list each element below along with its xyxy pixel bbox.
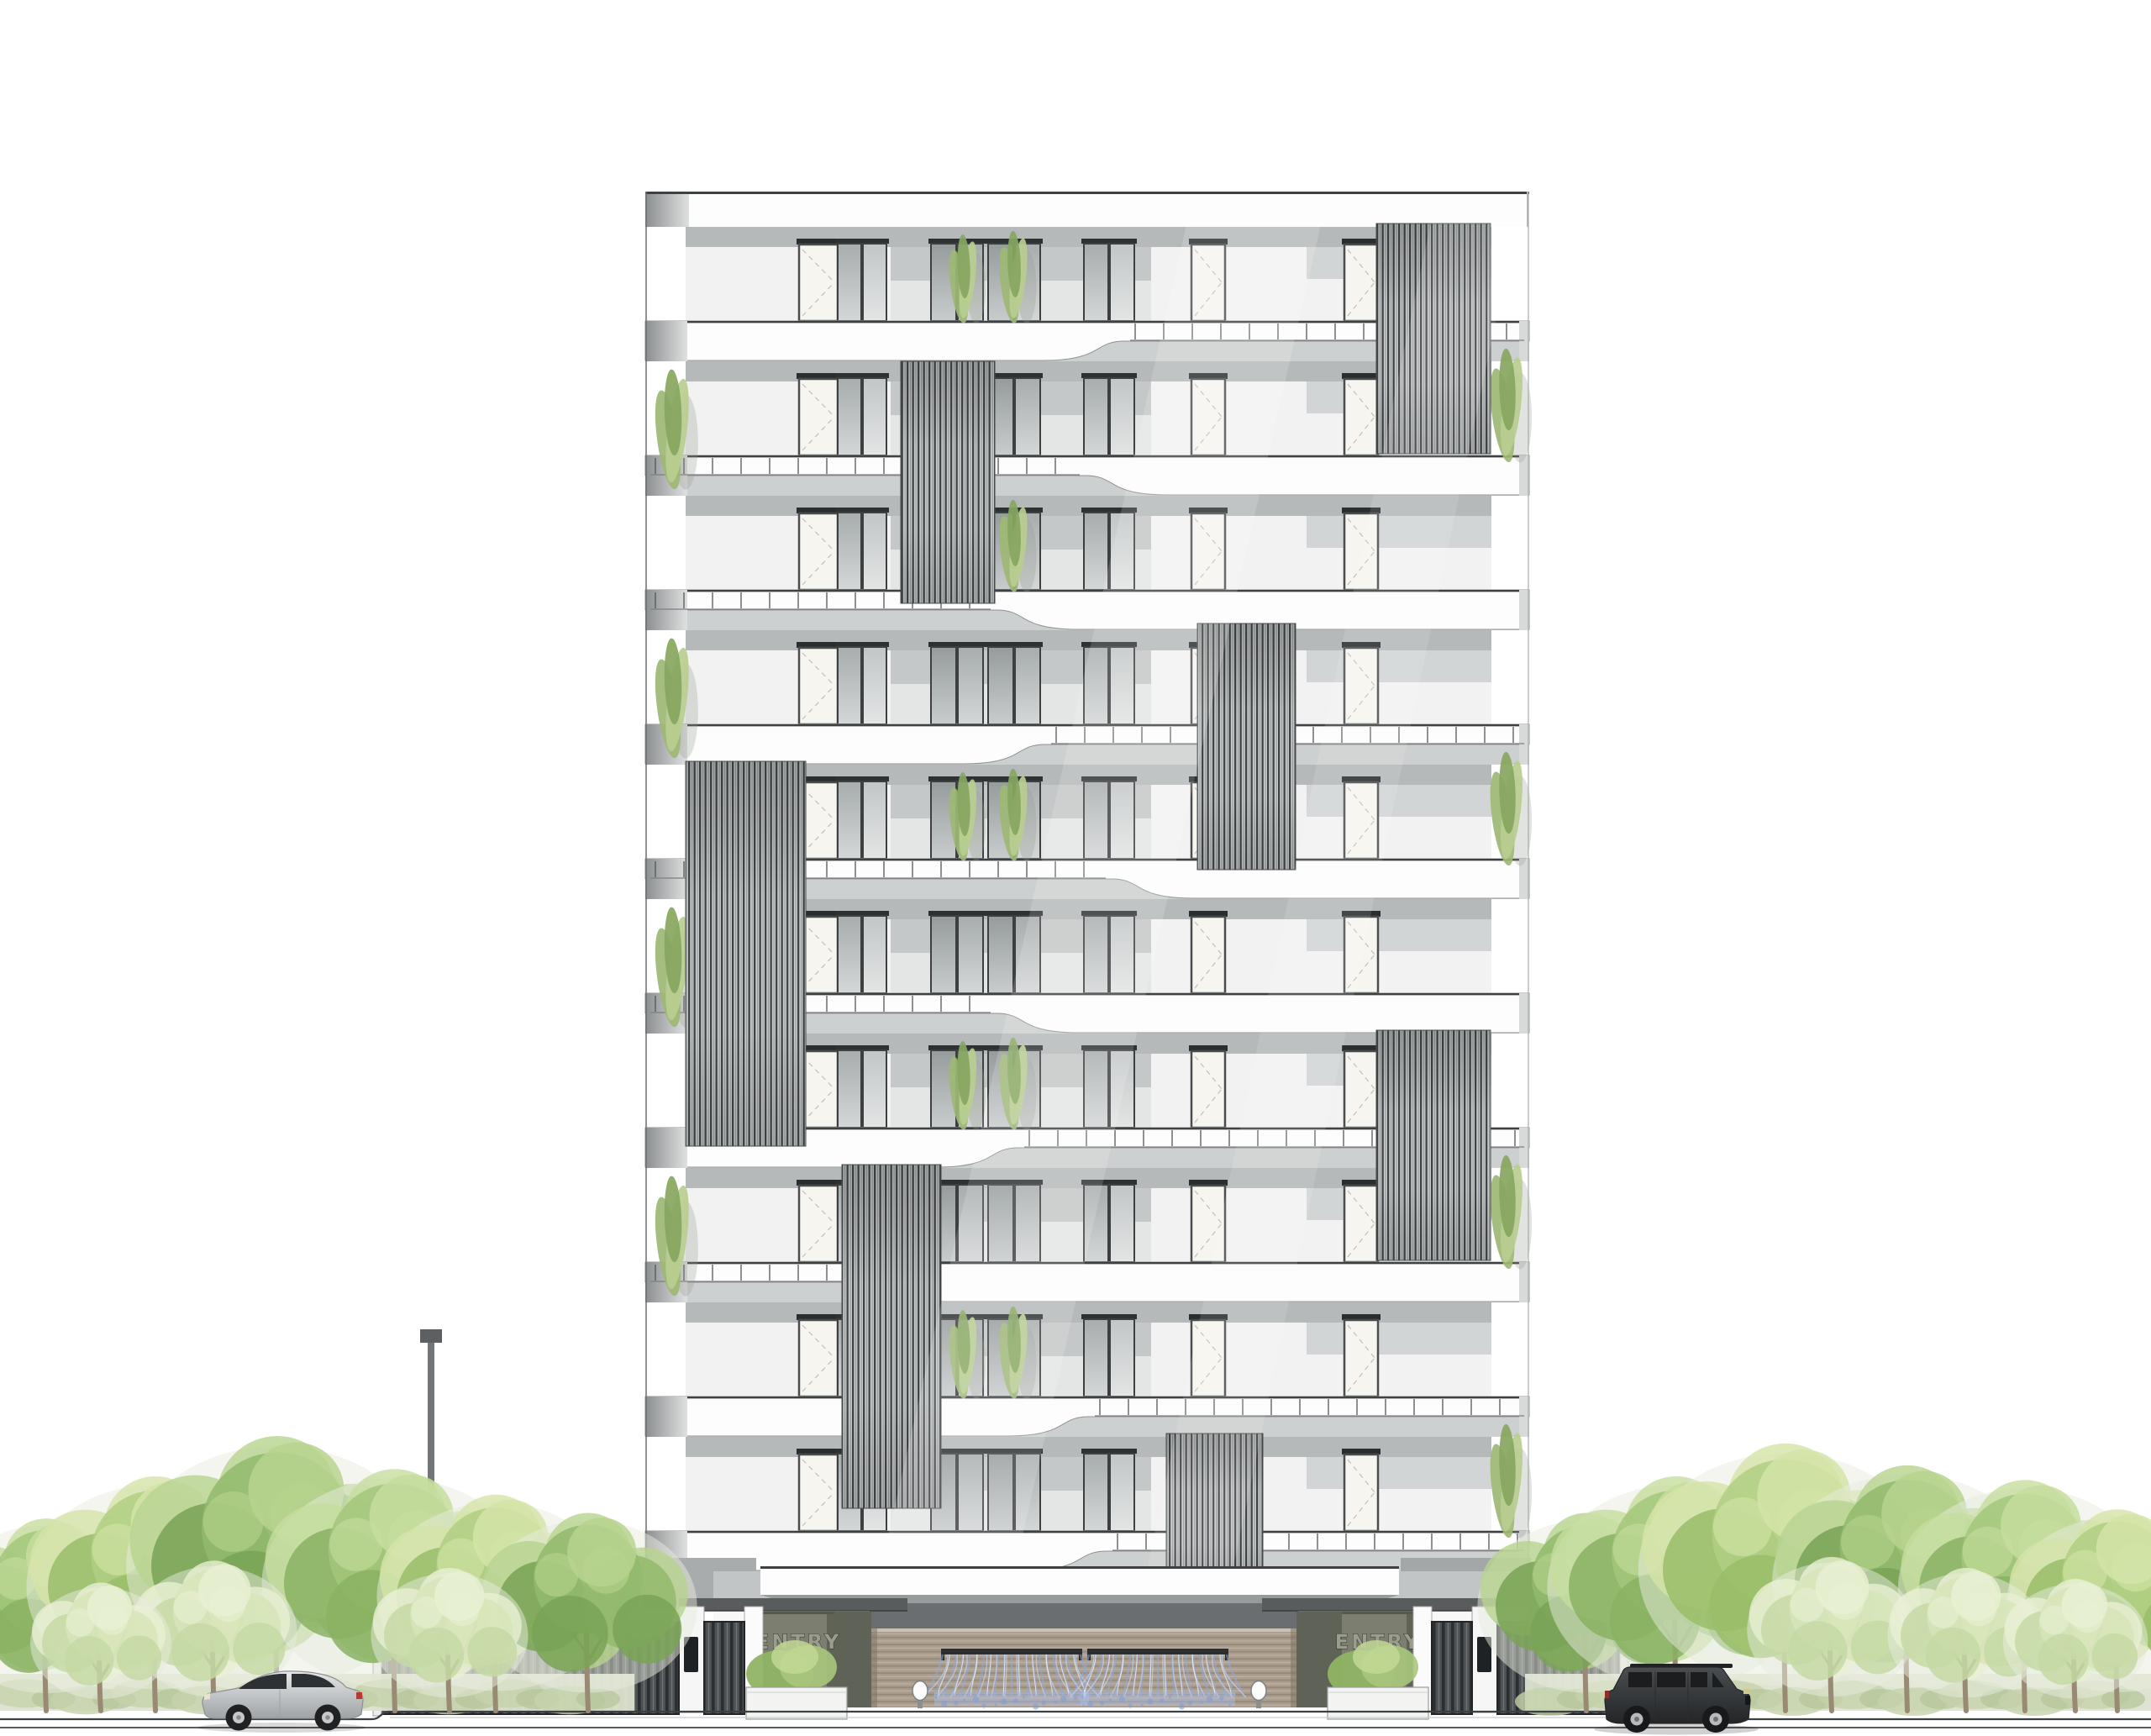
glazed-panel	[988, 647, 1013, 724]
door-leaf	[1344, 245, 1378, 321]
balcony-plant	[1486, 349, 1532, 464]
glazed-panel	[1110, 244, 1134, 321]
glazed-panel	[1110, 378, 1134, 455]
gate-leaf-left-inner	[704, 1622, 744, 1714]
door-leaf	[799, 1186, 838, 1262]
suv-grille	[1745, 1696, 1750, 1705]
door-leaf	[1191, 1051, 1225, 1128]
glazed-panel	[1110, 1319, 1134, 1397]
glazed-panel	[958, 647, 983, 724]
floor-10	[645, 1424, 1532, 1571]
glazed-panel	[838, 916, 861, 993]
glazed-panel	[863, 244, 886, 321]
sedan-taillight	[356, 1692, 362, 1699]
glazed-panel	[863, 1050, 886, 1128]
glazed-panel	[1084, 244, 1108, 321]
entry-eave-right	[1262, 1598, 1497, 1611]
door-leaf	[799, 513, 838, 590]
glazed-panel	[863, 916, 886, 993]
glazed-panel	[838, 647, 861, 724]
balcony-slab	[645, 1531, 1529, 1571]
balcony-slab	[645, 1397, 1529, 1437]
door-leaf	[1344, 1051, 1378, 1128]
glazed-panel	[838, 513, 861, 590]
roof-parapet	[645, 192, 1529, 227]
door-leaf	[799, 1455, 838, 1531]
balcony-plant	[1486, 1424, 1532, 1539]
suv-taillight	[1605, 1691, 1609, 1698]
door-leaf	[799, 379, 838, 455]
glazed-panel	[863, 647, 886, 724]
glazed-panel	[1084, 378, 1108, 455]
door-leaf	[799, 245, 838, 321]
balcony-slab	[645, 1262, 1529, 1302]
suv-window-2	[1657, 1672, 1686, 1687]
door-leaf	[1344, 379, 1378, 455]
glazed-panel	[931, 916, 956, 993]
glazed-panel	[863, 513, 886, 590]
suv-window-1	[1628, 1672, 1652, 1687]
louver-screen	[901, 361, 995, 603]
louver-screen	[1376, 1030, 1491, 1260]
glazed-panel	[1084, 513, 1108, 590]
glazed-panel	[988, 916, 1013, 993]
gate-leaf-right-inner	[1432, 1622, 1472, 1714]
suv-headlight	[1743, 1689, 1750, 1694]
glazed-panel	[1110, 1185, 1134, 1262]
door-leaf	[799, 1320, 838, 1397]
glazed-panel	[838, 781, 861, 859]
suv-window-3	[1691, 1672, 1707, 1687]
glazed-panel	[838, 1050, 861, 1128]
glazed-panel	[1110, 1454, 1134, 1531]
glazed-panel	[863, 378, 886, 455]
glazed-panel	[1015, 378, 1040, 455]
elevation-drawing: ENTRY B ENTRY A	[0, 0, 2151, 1736]
balcony-plant	[1486, 752, 1532, 867]
glazed-panel	[838, 378, 861, 455]
door-leaf	[1191, 917, 1225, 993]
glazed-panel	[958, 916, 983, 993]
glazed-panel	[838, 244, 861, 321]
glazed-panel	[1015, 647, 1040, 724]
entry-eave-left	[679, 1598, 907, 1611]
door-leaf	[1344, 1320, 1378, 1397]
door-leaf	[1344, 1455, 1378, 1531]
balcony-plant	[1486, 1155, 1532, 1270]
glazed-panel	[863, 781, 886, 859]
louver-screen	[686, 761, 806, 1146]
glazed-panel	[1084, 1454, 1108, 1531]
elevation-canvas: ENTRY B ENTRY A	[0, 0, 2151, 1736]
door-leaf	[1344, 1186, 1378, 1262]
floor-9	[645, 1302, 1529, 1437]
glazed-panel	[1084, 1319, 1108, 1397]
door-leaf	[799, 648, 838, 724]
glazed-panel	[931, 647, 956, 724]
